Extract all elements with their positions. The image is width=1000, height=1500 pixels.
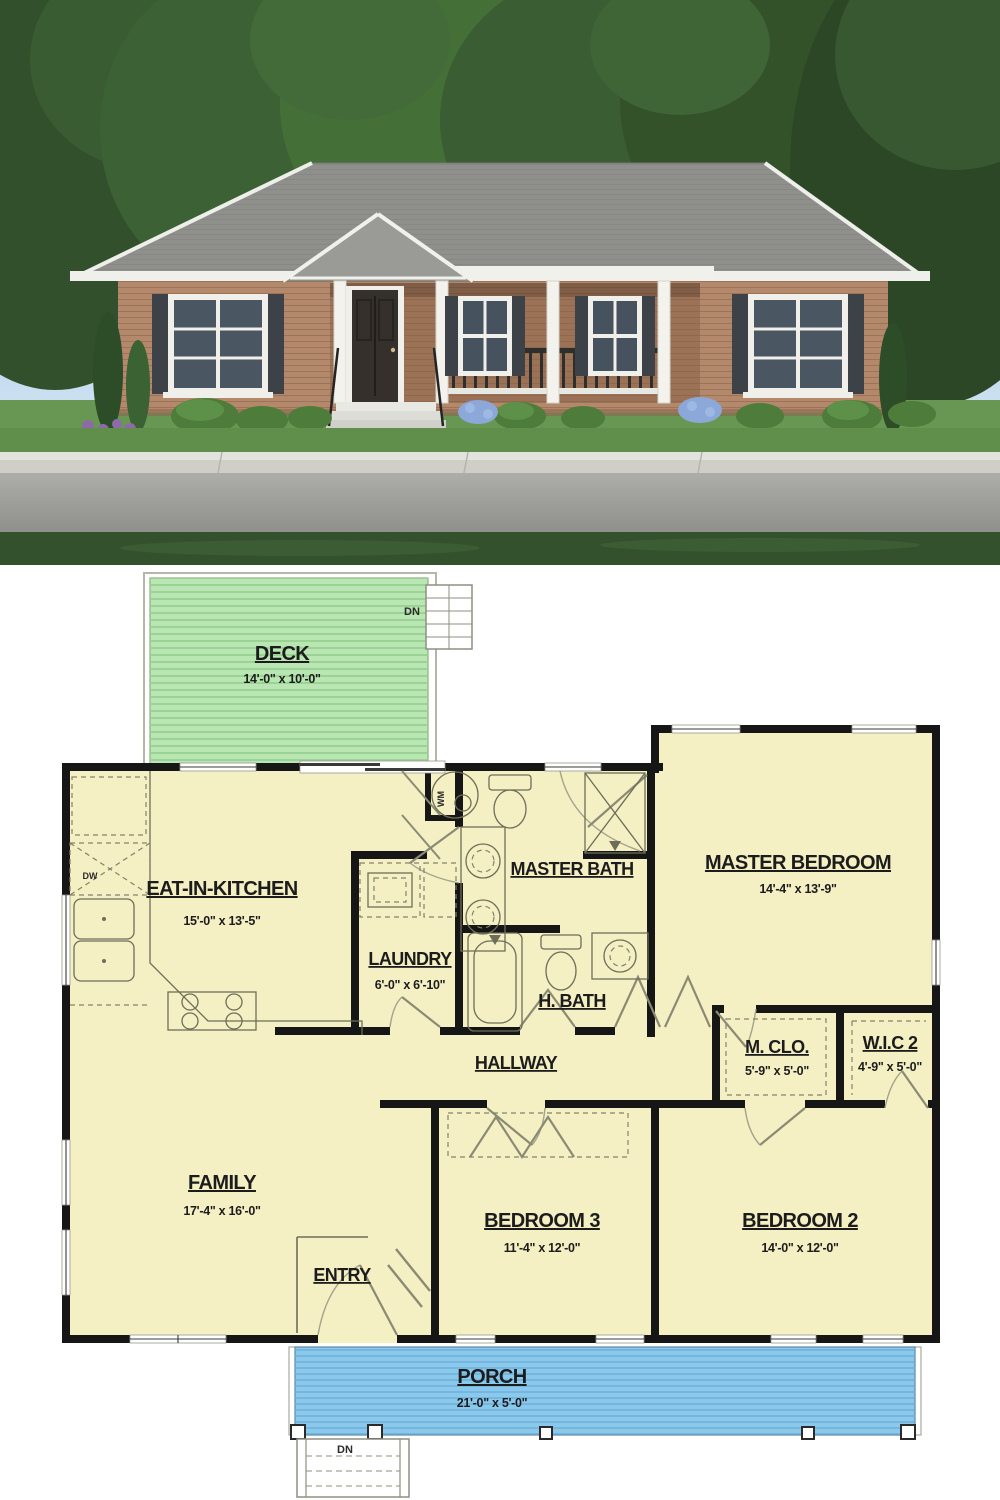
grass-highlight (120, 540, 480, 556)
master-bedroom-window (672, 725, 740, 733)
porch-boards (295, 1347, 915, 1435)
family-label: FAMILY (188, 1172, 257, 1194)
bedroom3-dims: 11'-4" x 12'-0" (504, 1241, 581, 1255)
bedroom3-front-window (596, 1335, 644, 1343)
porch-area: PORCH 21'-0" x 5'-0" DN (289, 1347, 921, 1497)
family-side-window (62, 1230, 70, 1295)
kitchen-label: EAT-IN-KITCHEN (146, 878, 297, 900)
deck-dims: 14'-0" x 10'-0" (243, 672, 321, 686)
sidewalk (0, 460, 1000, 473)
bedroom2-dims: 14'-0" x 12'-0" (761, 1241, 839, 1255)
hall-bath-label: H. BATH (538, 991, 605, 1011)
front-door (346, 286, 404, 404)
deck-stairs (426, 585, 472, 649)
hallway-label: HALLWAY (475, 1053, 558, 1073)
road (0, 473, 1000, 532)
porch-stairs (297, 1439, 409, 1497)
floor-plan: DN DECK 14'-0" x 10'-0" (0, 565, 1000, 1500)
master-bedroom-window (852, 725, 916, 733)
family-front-window (130, 1335, 226, 1343)
house-exterior-illustration (0, 0, 1000, 565)
deck-sliding-door (300, 761, 445, 773)
bedroom2-front-window (771, 1335, 816, 1343)
left-window (152, 294, 284, 398)
wic2-dims: 4'-9" x 5'-0" (858, 1060, 922, 1074)
family-side-window (62, 1140, 70, 1205)
kitchen-dims: 15'-0" x 13'-5" (183, 914, 261, 928)
pin-image: DN DECK 14'-0" x 10'-0" (0, 0, 1000, 1500)
floor-plan-drawing: DN DECK 14'-0" x 10'-0" (0, 565, 1000, 1500)
deck-area: DN DECK 14'-0" x 10'-0" (144, 573, 472, 771)
dishwasher-label: DW (83, 871, 98, 881)
porch-label: PORCH (457, 1366, 526, 1388)
master-bedroom-dims: 14'-4" x 13'-9" (759, 882, 837, 896)
bedroom3-label: BEDROOM 3 (484, 1210, 600, 1232)
master-bath-top-window (545, 763, 601, 771)
front-door-opening (318, 1335, 397, 1343)
bedroom3-front-window (456, 1335, 495, 1343)
master-bedroom-side-window (932, 940, 940, 985)
family-dims: 17'-4" x 16'-0" (183, 1204, 261, 1218)
master-bedroom-label: MASTER BEDROOM (705, 852, 891, 874)
entry-label: ENTRY (313, 1265, 371, 1285)
master-bedroom-floor-extension (655, 729, 934, 773)
deck-stairs-dn-label: DN (404, 606, 420, 618)
porch-window-left (445, 296, 525, 376)
porch-window-right (575, 296, 655, 376)
laundry-dims: 6'-0" x 6'-10" (375, 978, 446, 992)
laundry-label: LAUNDRY (368, 949, 452, 969)
door-knob (391, 348, 395, 352)
master-closet-dims: 5'-9" x 5'-0" (745, 1064, 809, 1078)
porch-edge-right (915, 1347, 921, 1435)
deck-label: DECK (255, 643, 310, 665)
wic2-label: W.I.C 2 (863, 1033, 918, 1053)
curb (0, 452, 1000, 460)
master-bath-label: MASTER BATH (510, 859, 633, 879)
master-closet-label: M. CLO. (745, 1037, 809, 1057)
washer-label: WM (436, 791, 446, 807)
bedroom2-label: BEDROOM 2 (742, 1210, 858, 1232)
bedroom2-front-window (863, 1335, 903, 1343)
front-lawn (0, 428, 1000, 455)
grass-highlight (600, 538, 920, 552)
porch-stairs-dn-label: DN (337, 1444, 353, 1456)
kitchen-sink-window (62, 895, 70, 985)
kitchen-top-window (180, 763, 256, 771)
right-window (732, 294, 864, 398)
conifer (93, 312, 123, 432)
porch-dims: 21'-0" x 5'-0" (457, 1396, 528, 1410)
porch-edge-left (289, 1347, 295, 1435)
house-exterior-photo (0, 0, 1000, 565)
conifer (126, 340, 150, 432)
